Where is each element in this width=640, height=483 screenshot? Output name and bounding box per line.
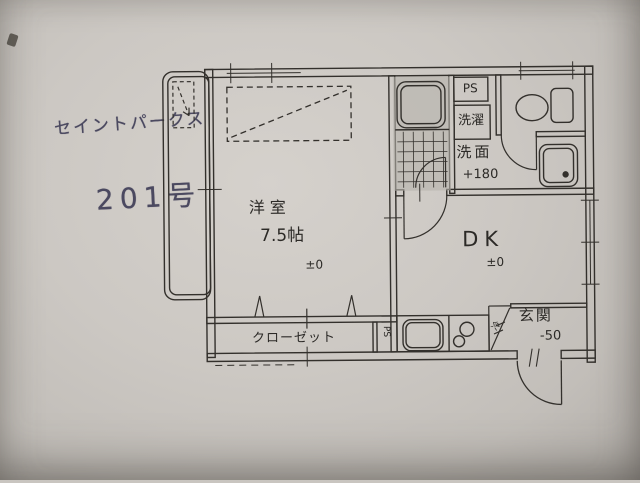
closet-door-marks: [255, 295, 356, 329]
western-room-label: 洋室: [249, 200, 291, 216]
dk-level: ±0: [486, 256, 504, 268]
dk-label: DK: [462, 229, 504, 250]
evacuation-hatch-icon: [173, 82, 194, 128]
washroom-level: +180: [463, 168, 499, 181]
floorplan-linework: [0, 0, 640, 483]
balcony-outline: [163, 71, 211, 299]
toilet-icon: [516, 88, 573, 122]
western-room-level: ±0: [305, 258, 323, 270]
loft-dashed-area: [227, 86, 351, 141]
western-room-size: 7.5帖: [260, 228, 304, 245]
toilet-door-arc: [501, 135, 536, 170]
entrance-level: -50: [540, 329, 561, 342]
vanity-sink-icon: [539, 144, 577, 186]
closet-label: クローゼット: [252, 331, 336, 345]
entrance-label: 玄関: [519, 308, 553, 323]
laundry-label: 洗濯: [458, 114, 484, 127]
washroom-label: 洗面: [456, 145, 492, 160]
pipe-space-bottom-label: PS: [381, 326, 390, 337]
kitchen-sink-icon: [403, 319, 443, 350]
pipe-space-top-label: PS: [463, 82, 478, 94]
washroom-door-arc: [404, 195, 447, 238]
entrance-door-arc: [517, 348, 561, 404]
stove-burners-icon: [453, 322, 474, 347]
floor-plan: 洋室 7.5帖 ±0 DK ±0 クローゼット PS PS 洗濯 洗面 +180…: [0, 0, 640, 483]
